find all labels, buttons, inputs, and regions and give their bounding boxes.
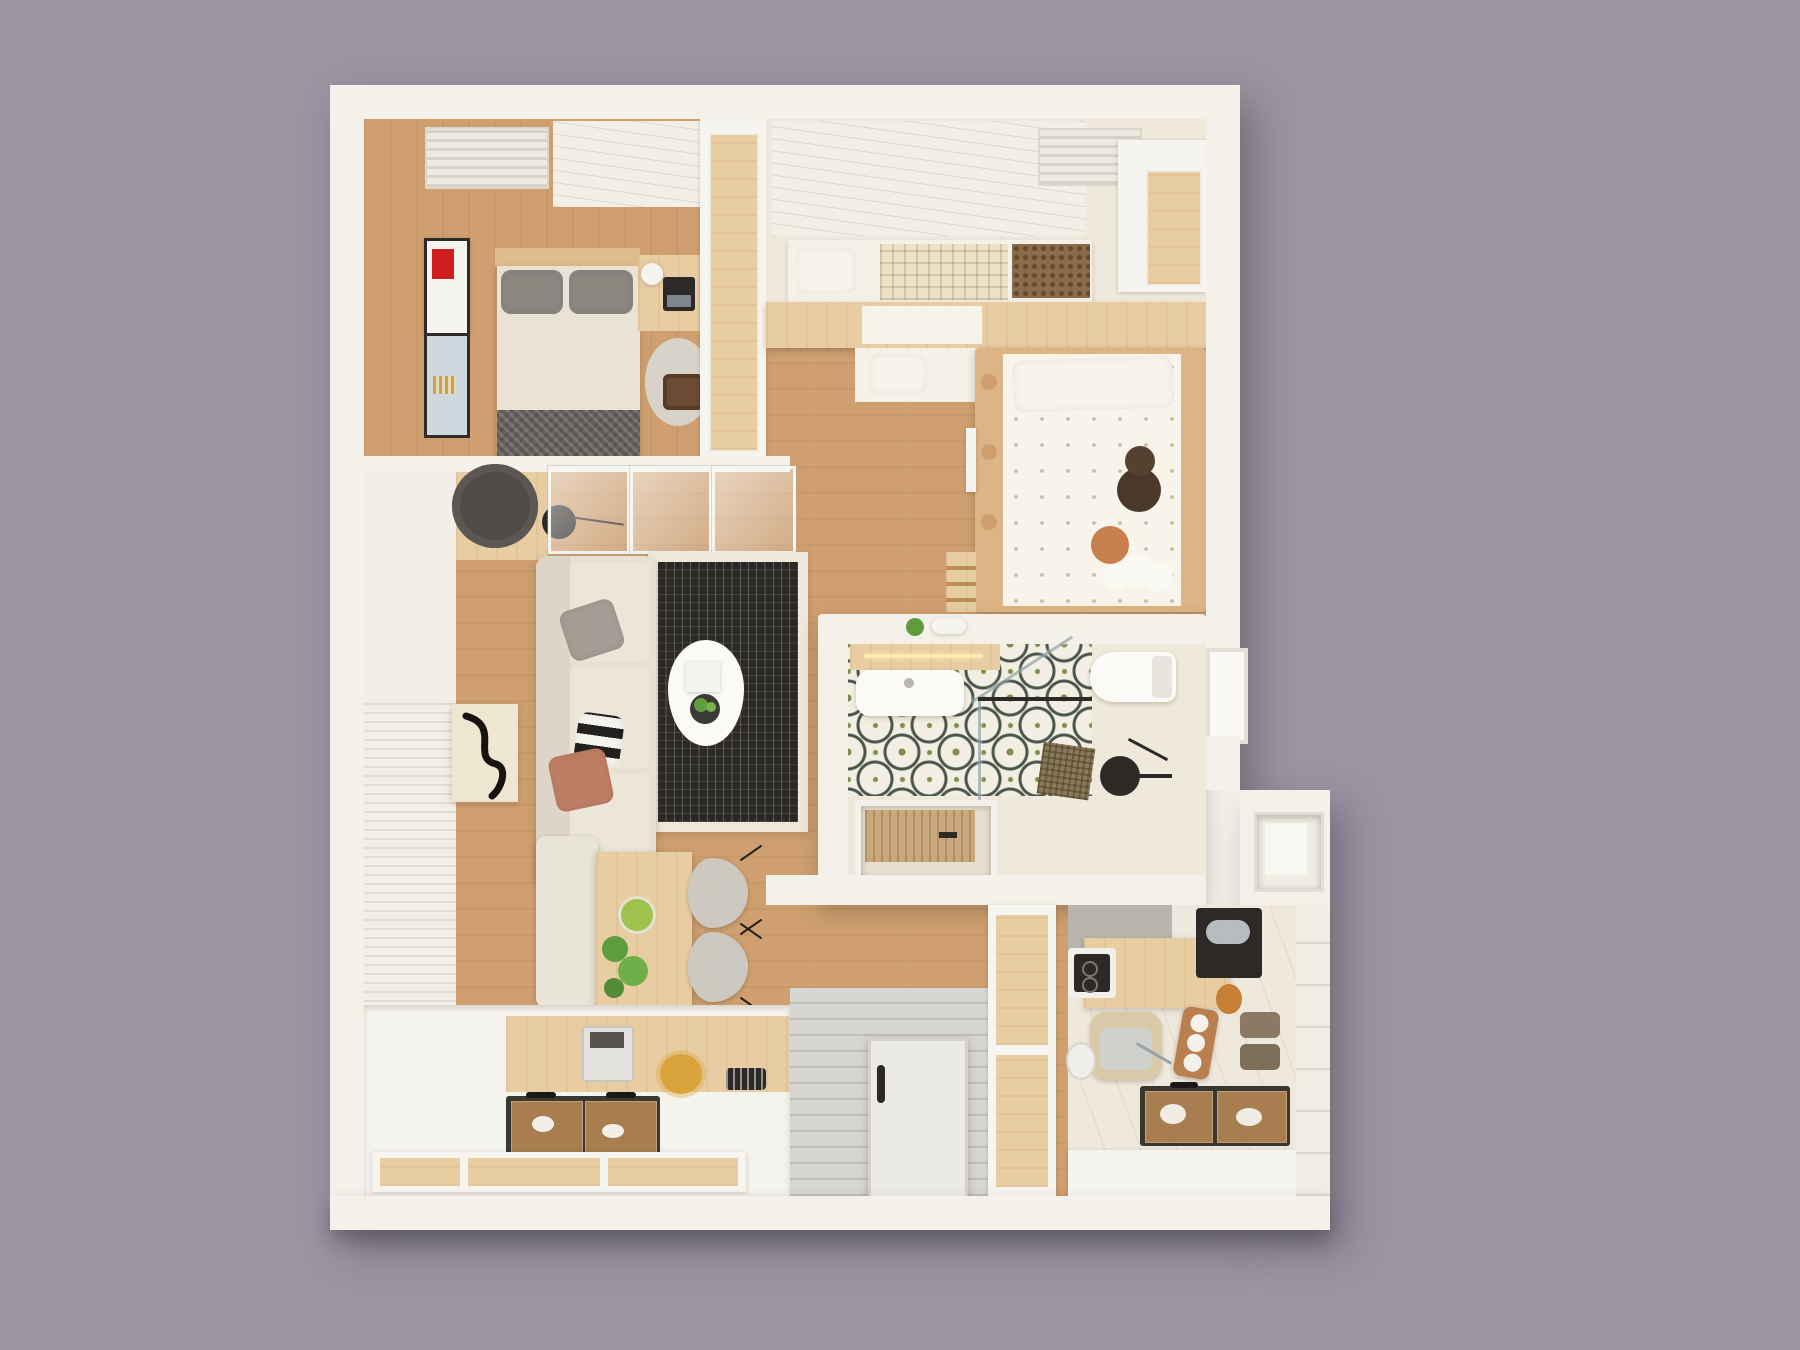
master-pillow-left [501,270,563,314]
living-wall-cabinet [364,472,456,1012]
cooktop-ring-1 [1082,961,1098,977]
bed-frame-cutout-1 [981,374,997,390]
table-greenery-c [604,978,624,998]
toilet-tank [1152,656,1172,698]
toilet [1090,652,1176,702]
balcony-slab [1240,790,1330,905]
outer-wall-right-upper [1206,85,1240,648]
digital-clock [726,1068,766,1090]
cloud-cushion-c [1103,564,1129,590]
master-pillow-right [569,270,633,314]
shower-top-rail [978,697,1092,701]
laptop-keyboard [667,295,691,307]
vanity-basin [856,670,964,716]
amber-jar [1216,984,1242,1014]
ladder-rung-2 [946,582,976,586]
cloud-cushion-b [1143,562,1173,592]
bedroom2-rattan-footboard [1012,244,1090,298]
bedroom2-lower-bed [788,240,1092,302]
glass-partition [548,466,790,548]
round-planter [452,464,538,548]
apple-bowl [618,896,656,934]
platform-drawer-front [372,1152,746,1192]
glass-handle-a [526,1092,556,1098]
red-square-artwork-detail [432,249,454,279]
wood-stool [663,374,703,410]
ceiling-panel-master [553,121,700,207]
dried-flowers [660,1054,702,1094]
skylight-recess [1254,812,1324,892]
tray-cup-2 [1186,1033,1207,1054]
coffee-machine-top [590,1032,624,1048]
dining-table [596,852,692,1022]
skylight-panel [1265,823,1307,875]
abstract-brush-stroke [452,704,518,802]
dining-bench [536,836,598,1008]
tray-cup-3 [1182,1052,1203,1073]
kitchen-glass-handle [1170,1082,1198,1088]
shower-mat [1037,742,1096,801]
bedroom2-wardrobe-door [1146,170,1202,286]
vanity-counter [850,644,1000,670]
master-headboard [495,248,640,266]
ladder-rung-1 [946,566,976,570]
abstract-art-panel [452,704,518,802]
shower-arm [1112,774,1172,778]
table-greenery-b [618,956,648,986]
bath-shelf-towel [932,618,966,634]
coffee-machine-cylinder [1206,920,1250,944]
wall-art-red-square [424,238,470,336]
wall-pod-entry [766,875,1206,905]
stored-item-1 [532,1116,554,1132]
coffee-table-books [686,662,720,692]
outer-wall-left [330,85,364,1230]
kids-wall-shelf [966,428,976,492]
outer-wall-top [330,85,1240,119]
partition-pane-1 [548,466,630,554]
storage-box-2 [1240,1044,1280,1070]
vanity-light-strip [864,654,982,658]
laptop [663,277,695,311]
landscape-artwork-detail [433,376,455,394]
basin-drain [904,678,914,688]
scene-canvas [0,0,1800,1350]
kitchen-cup [1066,1042,1096,1080]
cooktop-surface [1074,954,1110,992]
ceiling-vent-master [425,127,549,189]
glass-storage-left [506,1096,660,1158]
desk-lamp [641,263,663,285]
slatted-wall-panel [364,702,456,1002]
master-wardrobe [700,119,766,462]
drawer-panel-1 [380,1158,460,1186]
glass-storage-kitchen [1140,1086,1290,1146]
stored-item-2 [602,1124,624,1138]
kitchen-platform-front [1068,1150,1296,1196]
shower-glass-side [978,700,981,812]
front-door [868,1038,968,1202]
coffee-machine-black [1196,908,1262,978]
storage-box-1 [1240,1012,1280,1038]
bed-frame-cutout-2 [981,444,997,460]
drawer-panel-3 [608,1158,738,1186]
sliding-door-panel-top [996,915,1048,1045]
bathroom-window [1206,648,1248,744]
loft-ladder [946,552,976,612]
master-knit-throw [497,410,640,462]
loft-platform [766,302,1206,348]
drawer-panel-2 [468,1158,600,1186]
ladder-rung-3 [946,598,976,602]
table-plant-leaf [706,702,716,712]
door-handle [877,1065,885,1103]
sliding-door-panel-bottom [996,1055,1048,1187]
wardrobe-door-panel [709,133,759,452]
teddy-bear-head [1125,446,1155,476]
bed-frame-cutout-3 [981,514,997,530]
wall-art-landscape [424,333,470,438]
kids-bed-frame [975,348,1206,612]
tub-drain [939,832,957,838]
partition-pane-2 [630,466,712,554]
sunken-tub [855,800,997,884]
coffee-machine [582,1026,634,1082]
sliding-door-frame [988,905,1056,1196]
cooktop-body [1068,948,1116,998]
stored-dish-1 [1160,1104,1186,1124]
bedroom2-pillow [796,248,856,294]
outer-wall-right-mid [1206,736,1240,790]
glass-handle-b [606,1092,636,1098]
pompom-cushion [1091,526,1129,564]
outer-wall-bottom [330,1196,1330,1230]
kids-pillow [1012,355,1174,413]
kitchen-sink [1090,1012,1162,1080]
master-bed [497,266,640,462]
sofa-pillow-copper [547,747,615,814]
cooktop-ring-2 [1082,977,1098,993]
bedroom2-checker-blanket [880,244,1008,300]
bedroom2-wardrobe [1118,140,1206,292]
stored-dish-2 [1236,1108,1262,1126]
under-loft-bed [855,348,985,402]
bath-shelf-plant [906,618,924,636]
tray-cup-1 [1189,1013,1210,1034]
partition-pane-3 [712,466,796,554]
under-loft-pillow [869,354,927,394]
loft-opening-panel [862,306,982,344]
extension-right-wall-panels [1296,905,1330,1196]
tub-wood-slats [865,810,975,862]
